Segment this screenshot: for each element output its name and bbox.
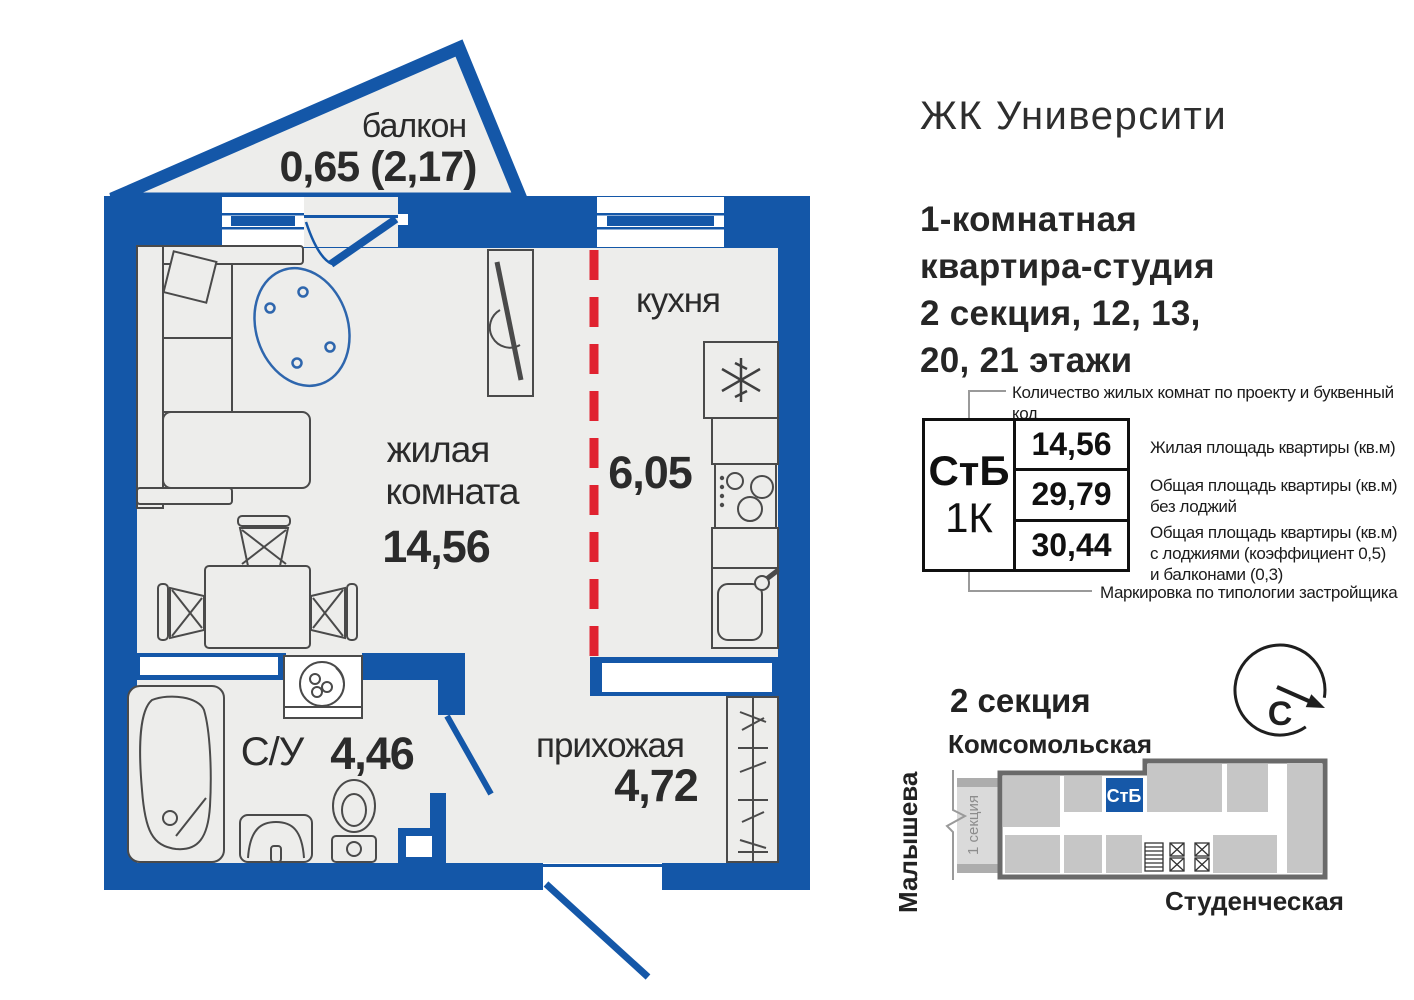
tv-console: [488, 250, 533, 396]
section-1-label: 1 секция: [965, 795, 982, 855]
type-code-cell: СтБ 1К: [925, 421, 1016, 569]
wardrobe: [727, 697, 778, 862]
balcony-area: 0,65 (2,17): [280, 143, 477, 191]
kitchen-label: кухня: [636, 281, 720, 320]
living-label-line1: жилая: [387, 429, 490, 470]
project-title: ЖК Университи: [920, 94, 1227, 139]
highlighted-unit: СтБ: [1106, 778, 1143, 812]
north-letter: С: [1268, 695, 1293, 733]
kitchen-window: [597, 197, 724, 247]
building-section-plan: 1 секция СтБ: [945, 748, 1345, 898]
bathroom-label: С/У: [241, 730, 305, 774]
bathtub: [128, 686, 224, 862]
total-area-with-balcony-value: 30,44: [1016, 519, 1127, 569]
living-label-line2: комната: [386, 471, 520, 512]
chair-top: [238, 516, 290, 566]
connector-line: [968, 390, 1006, 392]
highlighted-unit-label: СтБ: [1107, 786, 1142, 806]
total-area-value: 29,79: [1016, 468, 1127, 518]
section-title: 2 секция: [950, 682, 1091, 720]
type-code: СтБ: [928, 448, 1009, 494]
living-area-note: Жилая площадь квартиры (кв.м): [1150, 437, 1395, 458]
street-left-label: Малышева: [893, 768, 924, 913]
hallway-area: 4,72: [614, 760, 698, 811]
washing-machine: [284, 656, 362, 718]
vent-shaft: [406, 836, 432, 857]
dining-table: [205, 566, 310, 648]
connector-line: [968, 590, 1092, 592]
bathroom-sink: [240, 815, 312, 862]
entrance-door: [543, 863, 662, 977]
area-info-table: СтБ 1К 14,56 29,79 30,44: [922, 418, 1130, 572]
total-area-note: Общая площадь квартиры (кв.м) без лоджий: [1150, 475, 1397, 517]
entrance-door-leaf: [546, 884, 648, 977]
kitchen-area: 6,05: [608, 447, 692, 498]
floorplan-drawing: балкон 0,65 (2,17) кухня 6,05 жилая комн…: [0, 0, 880, 1000]
section-1-stub: 1 секция: [947, 770, 1000, 880]
kitchen-hall-wall: [590, 657, 810, 696]
pillow: [164, 251, 217, 302]
living-area: 14,56: [382, 521, 490, 572]
living-area-value: 14,56: [1016, 421, 1127, 468]
floorplan-sheet: балкон 0,65 (2,17) кухня 6,05 жилая комн…: [0, 0, 1414, 1000]
apartment-subtitle: 1-комнатная квартира-студия 2 секция, 12…: [920, 196, 1215, 384]
bathroom-area: 4,46: [330, 728, 414, 779]
connector-line: [968, 390, 970, 418]
connector-line: [968, 572, 970, 592]
stairs-icon: [1145, 843, 1163, 871]
rooms-code: 1К: [945, 494, 993, 542]
total-area-with-balcony-note: Общая площадь квартиры (кв.м) с лоджиями…: [1150, 522, 1397, 585]
living-window: [222, 197, 304, 247]
table-bottom-note: Маркировка по типологии застройщика: [1100, 582, 1397, 603]
balcony-label: балкон: [362, 107, 466, 145]
north-arrow: С: [1233, 642, 1343, 747]
toilet: [332, 780, 376, 862]
